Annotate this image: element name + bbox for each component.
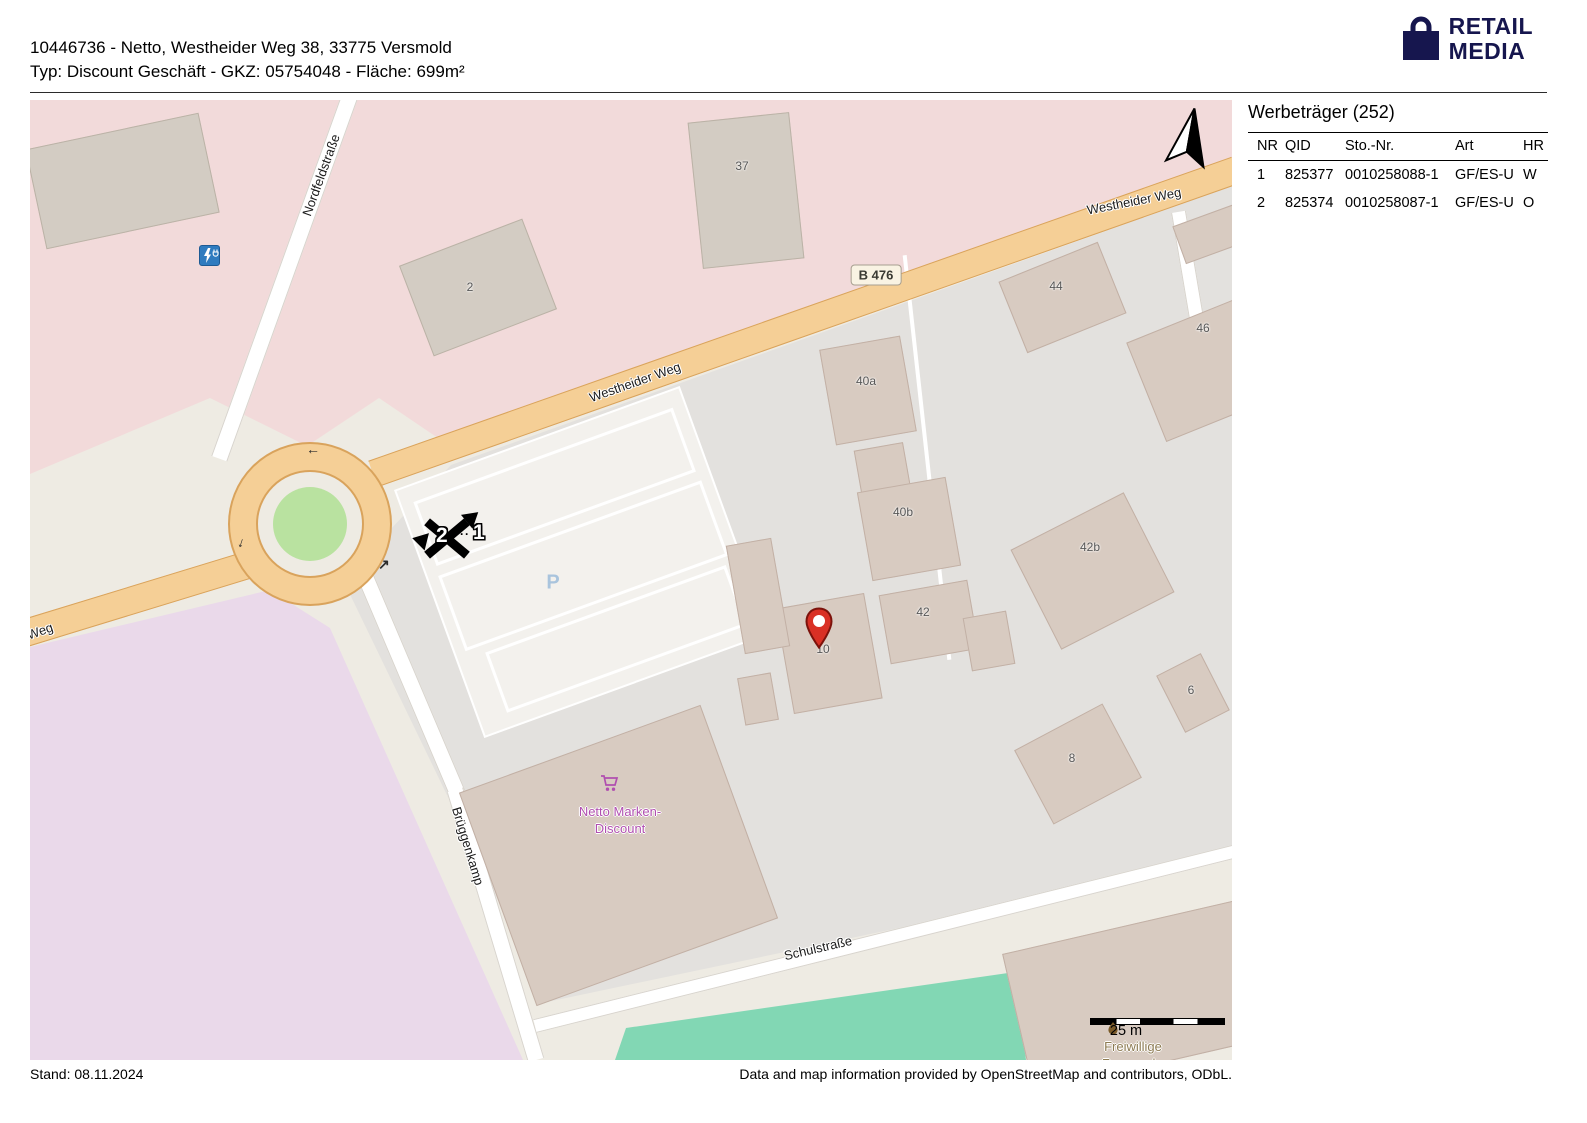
- col-sto: Sto.-Nr.: [1345, 138, 1455, 154]
- cell-nr: 1: [1257, 167, 1285, 183]
- poi-feuerwehr-line2: Feuerwehr: [1102, 1055, 1164, 1060]
- cell-hr: O: [1523, 195, 1548, 211]
- panel-title: Werbeträger (252): [1248, 100, 1548, 132]
- footer-attribution: Data and map information provided by Ope…: [30, 1066, 1232, 1082]
- report-header: 10446736 - Netto, Westheider Weg 38, 337…: [30, 36, 465, 84]
- marker-number-1: 1: [473, 521, 485, 545]
- marker-number-2: 2: [436, 524, 448, 548]
- shopping-cart-icon: [600, 775, 620, 797]
- roundabout-green-center: [273, 487, 347, 561]
- report-page: { "header": { "line1": "10446736 - Netto…: [0, 0, 1587, 1123]
- location-pin-icon: [805, 607, 833, 656]
- building-number: 46: [1196, 321, 1209, 335]
- ev-charging-icon: [199, 245, 220, 271]
- logo-word-retail: RETAIL: [1449, 14, 1533, 39]
- col-hr: HR: [1523, 138, 1548, 154]
- retail-media-logo: RETAIL MEDIA: [1400, 14, 1533, 67]
- werbetraeger-panel: Werbeträger (252) NR QID Sto.-Nr. Art HR…: [1248, 100, 1548, 217]
- cell-sto: 0010258087-1: [1345, 195, 1455, 211]
- building-number: 42b: [1080, 540, 1100, 554]
- poi-netto-line2: Discount: [579, 820, 661, 837]
- cell-nr: 2: [1257, 195, 1285, 211]
- marker-dots: ···: [455, 527, 470, 541]
- cell-sto: 0010258088-1: [1345, 167, 1455, 183]
- marker-arrowhead-west: [410, 529, 429, 550]
- building-37: [688, 112, 805, 269]
- map-canvas: ← ↓ ↗ B 476 Westheider Weg Westheider We…: [30, 100, 1232, 1060]
- building-40a: [819, 336, 917, 446]
- scale-label: 25 m: [1093, 1023, 1159, 1039]
- building-number: 37: [735, 159, 748, 173]
- table-header-row: NR QID Sto.-Nr. Art HR: [1248, 133, 1548, 160]
- header-divider: [30, 92, 1547, 93]
- table-row: 1 825377 0010258088-1 GF/ES-U W: [1248, 161, 1548, 189]
- col-nr: NR: [1257, 138, 1285, 154]
- poi-netto-line1: Netto Marken-: [579, 803, 661, 820]
- building-number: 6: [1188, 683, 1195, 697]
- building-40b: [857, 477, 961, 581]
- shopping-bag-icon: [1400, 14, 1442, 67]
- cell-art: GF/ES-U: [1455, 195, 1523, 211]
- building-annex: [963, 611, 1016, 672]
- building-number: 8: [1069, 751, 1076, 765]
- store-title: 10446736 - Netto, Westheider Weg 38, 337…: [30, 36, 465, 60]
- building-number: 40a: [856, 374, 876, 388]
- cell-art: GF/ES-U: [1455, 167, 1523, 183]
- logo-word-media: MEDIA: [1449, 39, 1533, 64]
- poi-label-feuerwehr: Freiwillige Feuerwehr: [1102, 1038, 1164, 1060]
- roundabout-arrow-icon: ←: [306, 441, 320, 457]
- route-badge-b476: B 476: [851, 265, 902, 286]
- store-subtitle: Typ: Discount Geschäft - GKZ: 05754048 -…: [30, 60, 465, 84]
- poi-label-netto: Netto Marken- Discount: [579, 803, 661, 837]
- werbetraeger-marker-group: 2 ··· 1: [415, 508, 499, 568]
- col-qid: QID: [1285, 138, 1345, 154]
- roundabout-arrow-icon: ↗: [378, 556, 390, 573]
- table-row: 2 825374 0010258087-1 GF/ES-U O: [1248, 189, 1548, 217]
- building-number: 40b: [893, 505, 913, 519]
- logo-wordmark: RETAIL MEDIA: [1449, 14, 1533, 64]
- cell-qid: 825374: [1285, 195, 1345, 211]
- cell-hr: W: [1523, 167, 1548, 183]
- building-number: 2: [467, 280, 474, 294]
- col-art: Art: [1455, 138, 1523, 154]
- building-number: 44: [1049, 279, 1062, 293]
- parking-label: P: [546, 572, 559, 595]
- cell-qid: 825377: [1285, 167, 1345, 183]
- building-number: 42: [916, 605, 929, 619]
